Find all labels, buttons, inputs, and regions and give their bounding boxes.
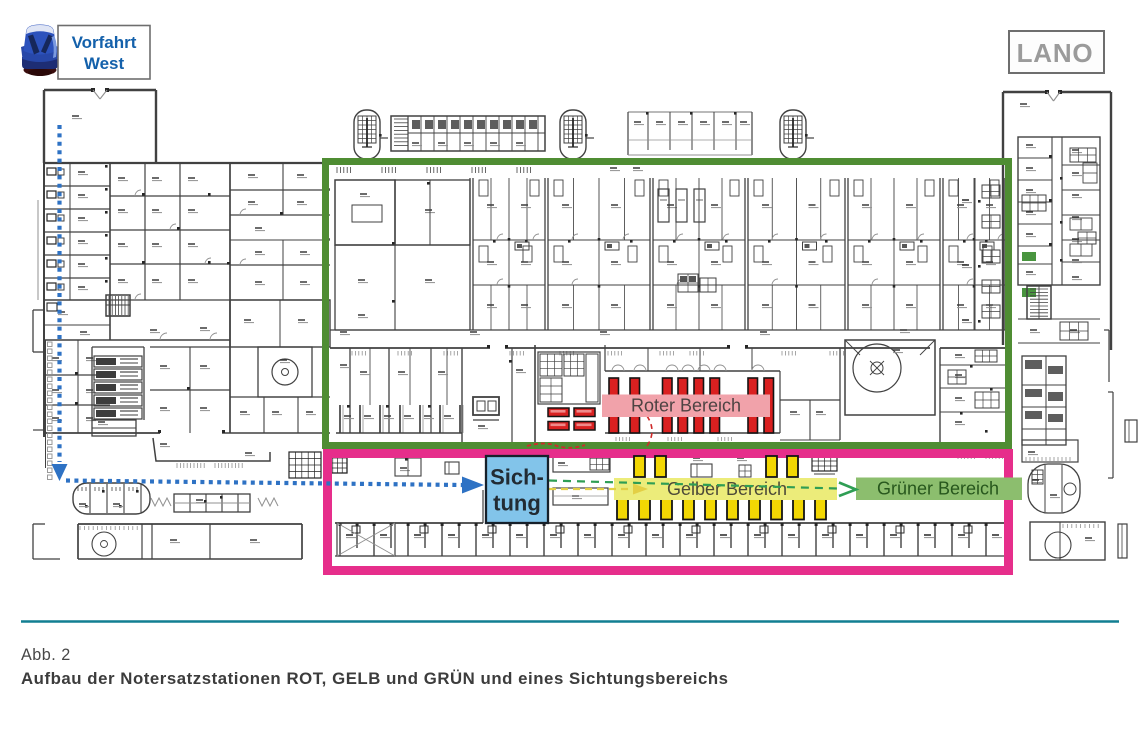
svg-text:Aufbau der Notersatzstationen: Aufbau der Notersatzstationen ROT, GELB … xyxy=(21,669,729,688)
svg-text:Abb. 2: Abb. 2 xyxy=(21,646,71,664)
svg-text:tung: tung xyxy=(493,491,541,516)
svg-text:Roter Bereich: Roter Bereich xyxy=(631,396,741,416)
svg-text:Sich-: Sich- xyxy=(490,465,544,490)
svg-text:LANO: LANO xyxy=(1017,38,1094,68)
svg-text:Grüner Bereich: Grüner Bereich xyxy=(877,479,999,499)
svg-text:Gelber Bereich: Gelber Bereich xyxy=(667,479,787,499)
svg-text:West: West xyxy=(84,54,125,73)
svg-text:Vorfahrt: Vorfahrt xyxy=(72,33,137,52)
